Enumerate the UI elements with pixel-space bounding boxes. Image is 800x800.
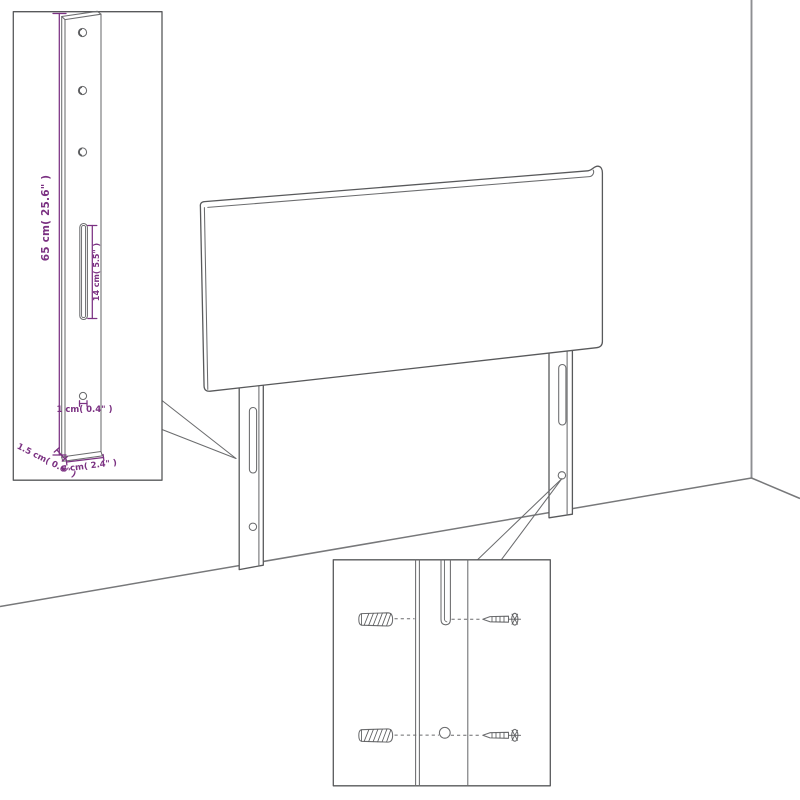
left-leg-body [239,384,263,569]
dim-label-height: 65 cm( 25.6" ) [40,175,52,262]
wall-plug-icon [359,729,393,742]
callout-leader-bottom-inset [477,479,562,561]
leg-dimension-inset: 65 cm( 25.6" ) 14 cm( 5.5" ) 1 cm( 0.4" … [13,11,162,480]
right-leg-body [549,350,572,518]
leader-line [477,479,562,561]
headboard-leg-right [549,350,572,518]
assembly-diagram-page: 65 cm( 25.6" ) 14 cm( 5.5" ) 1 cm( 0.4" … [0,0,800,800]
headboard-leg-left [239,384,263,569]
mounting-hardware-inset [333,560,550,786]
panel-outline [200,166,602,391]
headboard-diagram-canvas: 65 cm( 25.6" ) 14 cm( 5.5" ) 1 cm( 0.4" … [0,0,800,800]
callout-leader-left-inset [162,401,236,459]
dim-label-slot: 14 cm( 5.5" ) [92,243,101,301]
inset-frame [333,560,550,786]
headboard-panel [200,166,602,391]
leader-line [162,401,236,459]
leader-line [162,430,236,459]
dim-label-hole: 1 cm( 0.4" ) [57,405,113,415]
wall-plug-icon [359,613,393,626]
